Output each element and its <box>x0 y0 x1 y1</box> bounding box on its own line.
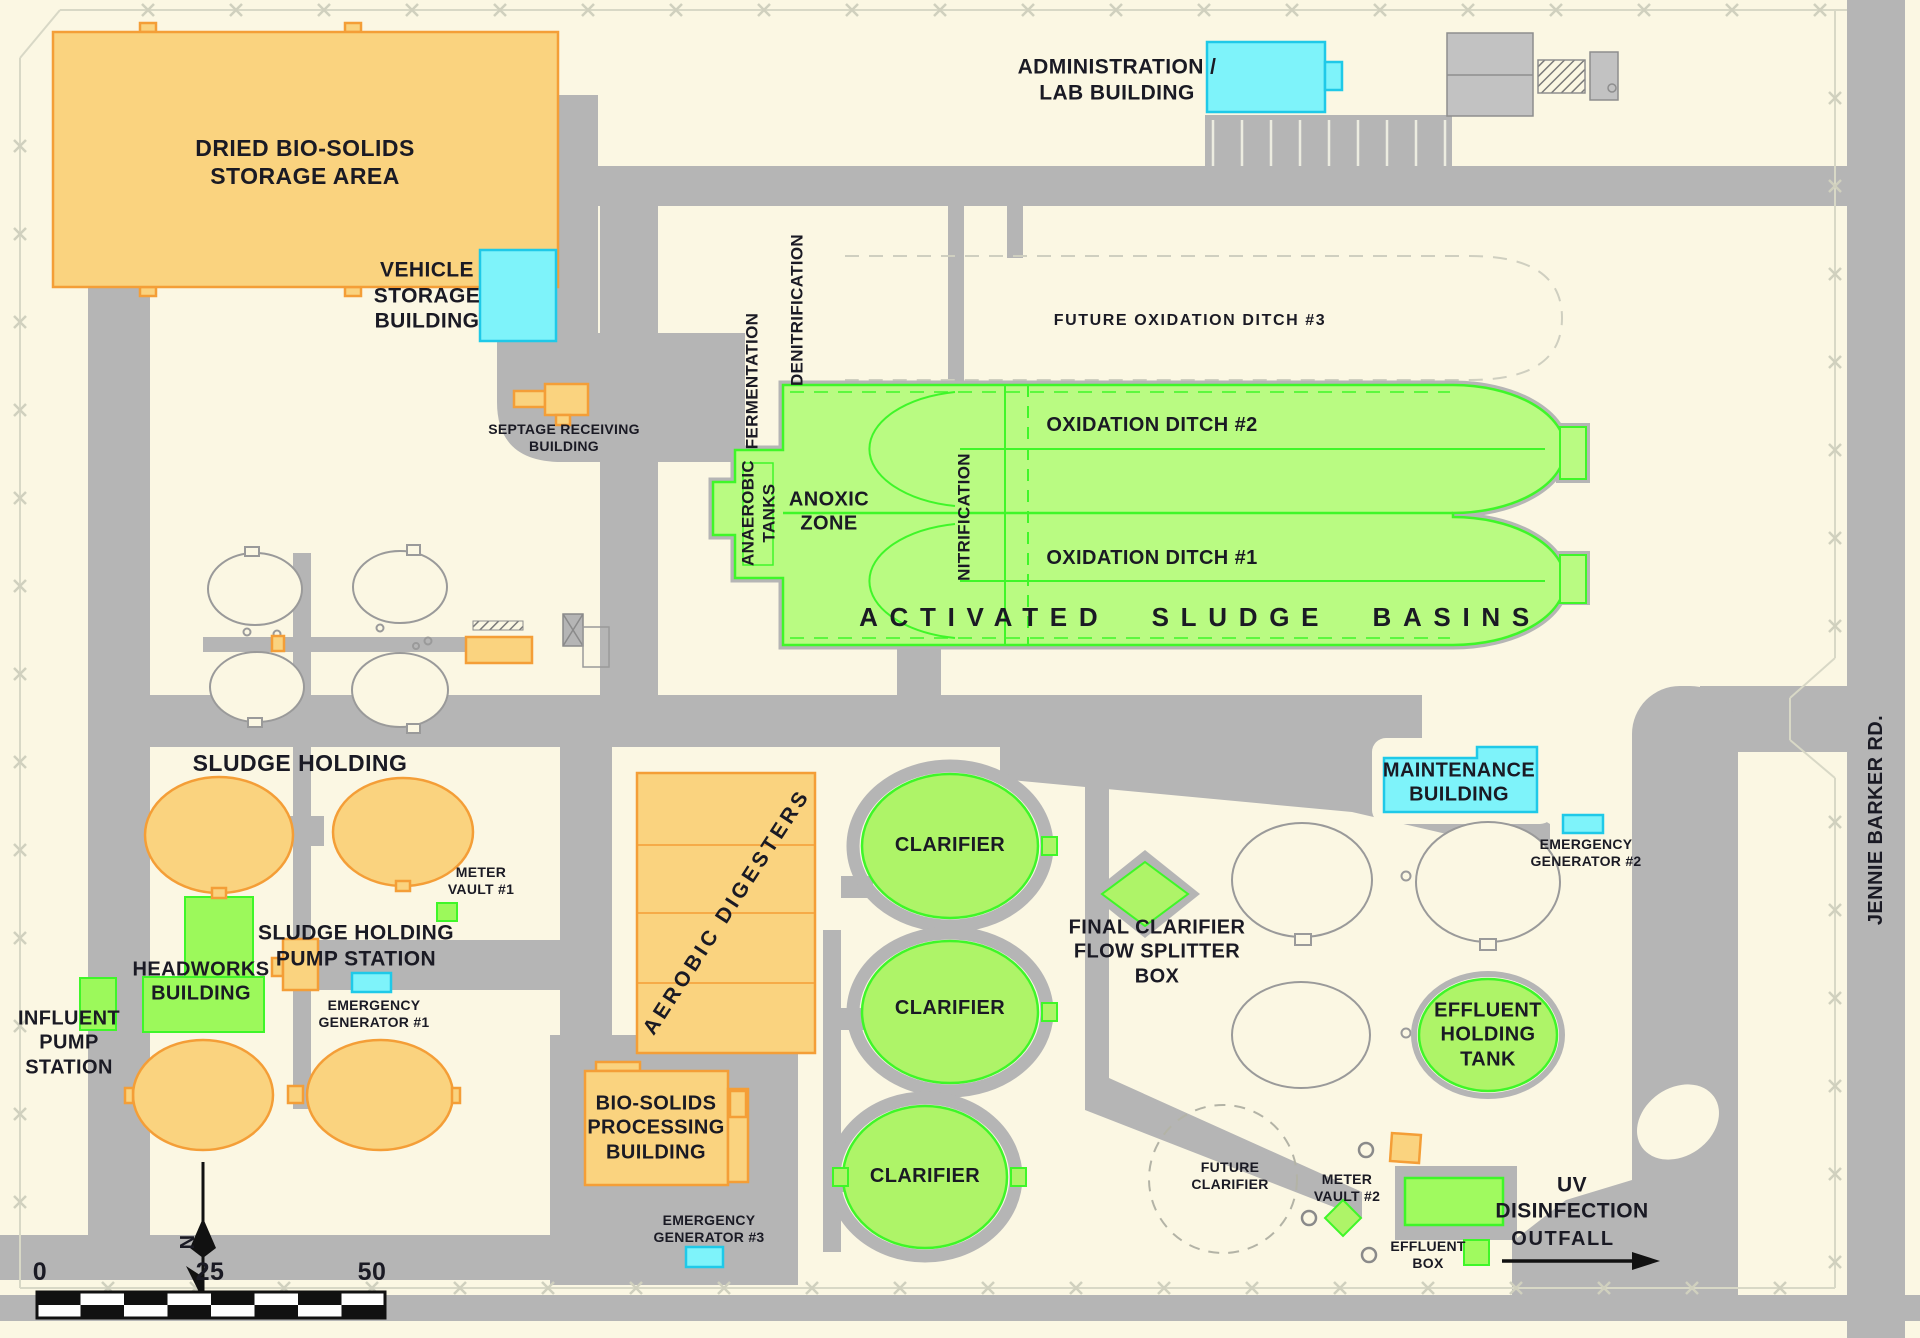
emergency-generator-1-shape <box>352 973 391 992</box>
ditch1-end-box <box>1560 555 1586 603</box>
label-emergency-generator-2: EMERGENCY GENERATOR #2 <box>1531 836 1642 870</box>
label-oxidation-ditch-1: OXIDATION DITCH #1 <box>1046 546 1257 570</box>
administration-lab-shape <box>1207 42 1325 112</box>
scale-bar <box>37 1292 385 1318</box>
label-meter-vault-2: METER VAULT #2 <box>1314 1171 1380 1205</box>
label-nitrification: NITRIFICATION <box>955 453 976 581</box>
label-future-oxidation-ditch-3: FUTURE OXIDATION DITCH #3 <box>1054 311 1327 331</box>
emergency-generator-2-shape <box>1563 815 1603 833</box>
label-administration: ADMINISTRATION / LAB BUILDING <box>1018 54 1217 105</box>
site-plan: DRIED BIO-SOLIDS STORAGE AREA VEHICLE ST… <box>0 0 1920 1338</box>
label-sludge-holding-upper: SLUDGE HOLDING <box>193 749 408 777</box>
label-headworks: HEADWORKS BUILDING <box>133 958 270 1007</box>
label-dried-biosolids: DRIED BIO-SOLIDS STORAGE AREA <box>195 134 414 190</box>
site-plan-graphics <box>0 0 1920 1338</box>
sludge-holding-tank-sw <box>133 1040 273 1150</box>
label-influent-pump-station: INFLUENT PUMP STATION <box>18 1006 120 1079</box>
sludge-holding-tank-se <box>307 1040 453 1150</box>
label-north: N <box>176 1235 200 1250</box>
uv-disinfection-shape <box>1405 1178 1503 1225</box>
label-uv-disinfection: UV DISINFECTION <box>1495 1172 1648 1223</box>
label-sludge-holding-pump-station: SLUDGE HOLDING PUMP STATION <box>258 920 454 971</box>
label-emergency-generator-1: EMERGENCY GENERATOR #1 <box>319 997 430 1031</box>
label-activated-sludge-basins: ACTIVATED SLUDGE BASINS <box>859 602 1541 634</box>
label-oxidation-ditch-2: OXIDATION DITCH #2 <box>1046 413 1257 437</box>
scale-label-50: 50 <box>358 1257 387 1288</box>
jennie-barker-road <box>1847 0 1905 1338</box>
label-clarifier-2: CLARIFIER <box>895 996 1005 1020</box>
label-biosolids-processing: BIO-SOLIDS PROCESSING BUILDING <box>587 1091 724 1164</box>
label-fermentation: FERMENTATION <box>743 313 764 450</box>
meter-vault-1-shape <box>437 903 457 921</box>
tank-valve-box-1 <box>272 636 284 651</box>
label-future-clarifier: FUTURE CLARIFIER <box>1191 1159 1268 1193</box>
label-final-clarifier-flow-splitter: FINAL CLARIFIER FLOW SPLITTER BOX <box>1069 915 1246 988</box>
effluent-box-shape <box>1464 1240 1489 1265</box>
sludge-transfer-building-shape <box>466 637 532 663</box>
label-clarifier-3: CLARIFIER <box>870 1164 980 1188</box>
vehicle-storage-shape <box>480 250 556 341</box>
hatched-pad <box>1538 60 1585 93</box>
label-maintenance: MAINTENANCE BUILDING <box>1383 759 1535 808</box>
emergency-generator-3-shape <box>686 1247 723 1267</box>
label-clarifier-1: CLARIFIER <box>895 833 1005 857</box>
tank-valve-box-2 <box>288 1086 303 1103</box>
label-septage-receiving: SEPTAGE RECEIVING BUILDING <box>488 421 640 455</box>
label-anoxic-zone: ANOXIC ZONE <box>789 488 869 537</box>
outfall-vault-shape <box>1390 1133 1421 1163</box>
label-anaerobic-tanks: ANAEROBIC TANKS <box>738 460 779 566</box>
label-outfall: OUTFALL <box>1511 1227 1614 1251</box>
scale-label-25: 25 <box>196 1257 225 1288</box>
label-vehicle-storage: VEHICLE STORAGE BUILDING <box>374 258 480 335</box>
label-jennie-barker-rd: JENNIE BARKER RD. <box>1864 715 1888 925</box>
sludge-holding-tank-nw <box>145 777 293 893</box>
label-effluent-holding-tank: EFFLUENT HOLDING TANK <box>1434 998 1542 1071</box>
label-effluent-box: EFFLUENT BOX <box>1390 1238 1465 1272</box>
scale-label-0: 0 <box>33 1257 47 1288</box>
label-meter-vault-1: METER VAULT #1 <box>448 864 514 898</box>
ditch2-end-box <box>1560 427 1586 479</box>
label-denitrification: DENITRIFICATION <box>788 234 809 386</box>
label-emergency-generator-3: EMERGENCY GENERATOR #3 <box>654 1212 765 1246</box>
